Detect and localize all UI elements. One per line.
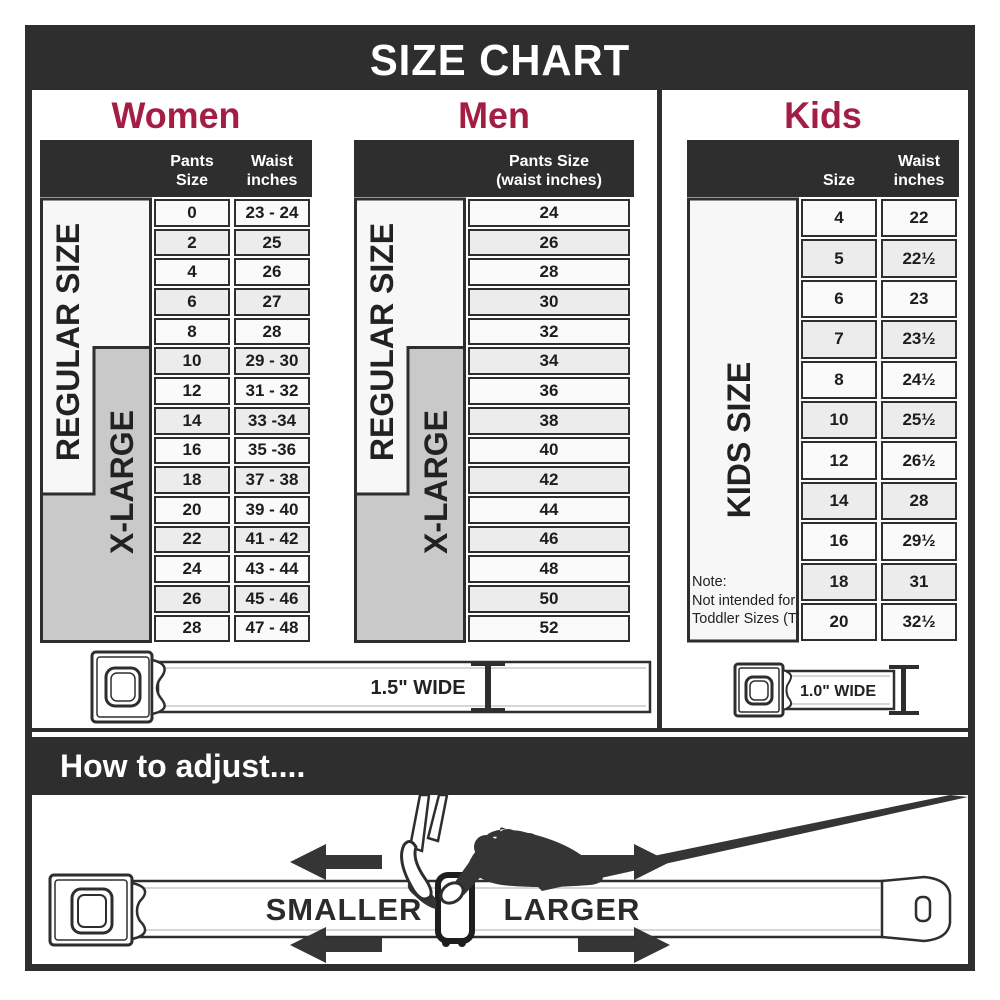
- seatbelt-buckle-icon: [50, 875, 145, 945]
- women-rows: 023 - 242254266278281029 - 301231 - 3214…: [154, 199, 310, 642]
- kids-size-band: KIDS SIZE Note: Not intended for Toddler…: [687, 140, 799, 643]
- kids-col-size: Size: [801, 171, 877, 190]
- adult-pane: Women Pants Size Waist inches: [32, 90, 657, 728]
- women-pants-size-cell: 14: [154, 407, 230, 435]
- kids-waist-cell: 29½: [881, 522, 957, 560]
- women-waist-cell: 33 -34: [234, 407, 310, 435]
- kids-waist-cell: 23½: [881, 320, 957, 358]
- kids-pane: Kids Size Waist inches KIDS SIZE: [662, 90, 968, 728]
- kids-size-cell: 10: [801, 401, 877, 439]
- women-xlarge-label: X-LARGE: [104, 410, 140, 554]
- kids-size-cell: 18: [801, 563, 877, 601]
- page-title: SIZE CHART: [370, 36, 630, 86]
- men-pants-size-cell: 42: [468, 466, 630, 494]
- kids-waist-cell: 23: [881, 280, 957, 318]
- women-waist-cell: 25: [234, 229, 310, 257]
- men-section: Men Pants Size (waist inches) REGULAR SI…: [354, 92, 634, 643]
- seatbelt-buckle-icon: [92, 652, 165, 722]
- women-waist-cell: 43 - 44: [234, 555, 310, 583]
- women-pants-size-cell: 2: [154, 229, 230, 257]
- kids-section: Kids Size Waist inches KIDS SIZE: [687, 92, 959, 643]
- men-pants-size-cell: 40: [468, 437, 630, 465]
- women-waist-cell: 29 - 30: [234, 347, 310, 375]
- women-pants-size-cell: 8: [154, 318, 230, 346]
- size-chart-page: SIZE CHART Women Pants Size Waist inches: [0, 0, 1000, 1000]
- women-col-pants-size: Pants Size: [154, 152, 230, 190]
- title-banner: SIZE CHART: [32, 32, 968, 90]
- kids-note-line2: Not intended for: [692, 593, 795, 609]
- men-col-pants-size: Pants Size (waist inches): [468, 152, 630, 190]
- women-waist-cell: 39 - 40: [234, 496, 310, 524]
- women-pants-size-cell: 20: [154, 496, 230, 524]
- arrow-left-icon: [290, 844, 382, 880]
- women-col-waist: Waist inches: [234, 152, 310, 190]
- women-pants-size-cell: 4: [154, 258, 230, 286]
- men-xlarge-label: X-LARGE: [418, 410, 454, 554]
- women-waist-cell: 35 -36: [234, 437, 310, 465]
- kids-waist-cell: 26½: [881, 441, 957, 479]
- larger-label: LARGER: [504, 892, 641, 927]
- how-to-adjust-heading: How to adjust....: [32, 748, 305, 785]
- kids-waist-cell: 28: [881, 482, 957, 520]
- women-waist-cell: 23 - 24: [234, 199, 310, 227]
- kids-size-cell: 8: [801, 361, 877, 399]
- belt-tip-icon: [882, 877, 950, 941]
- men-size-band: REGULAR SIZE X-LARGE: [354, 140, 466, 643]
- kids-size-cell: 20: [801, 603, 877, 641]
- men-regular-size-label: REGULAR SIZE: [364, 223, 400, 461]
- kids-note-line3: Toddler Sizes (T): [692, 611, 799, 627]
- men-pants-size-cell: 46: [468, 526, 630, 554]
- women-size-table: Pants Size Waist inches REGULAR SIZE X-L…: [40, 140, 312, 643]
- kids-size-cell: 5: [801, 239, 877, 277]
- women-pants-size-cell: 0: [154, 199, 230, 227]
- kids-note-line1: Note:: [692, 574, 727, 590]
- women-waist-cell: 41 - 42: [234, 526, 310, 554]
- kids-size-cell: 16: [801, 522, 877, 560]
- women-waist-cell: 47 - 48: [234, 615, 310, 643]
- men-pants-size-cell: 34: [468, 347, 630, 375]
- kids-waist-cell: 22½: [881, 239, 957, 277]
- kids-waist-cell: 32½: [881, 603, 957, 641]
- kids-rows: 422522½623723½824½1025½1226½14281629½183…: [801, 199, 957, 641]
- men-pants-size-cell: 30: [468, 288, 630, 316]
- women-pants-size-cell: 22: [154, 526, 230, 554]
- kids-size-cell: 7: [801, 320, 877, 358]
- men-pants-size-cell: 32: [468, 318, 630, 346]
- women-waist-cell: 45 - 46: [234, 585, 310, 613]
- kids-waist-cell: 24½: [881, 361, 957, 399]
- kids-col-waist: Waist inches: [881, 152, 957, 190]
- kids-waist-cell: 25½: [881, 401, 957, 439]
- women-pants-size-cell: 12: [154, 377, 230, 405]
- women-waist-cell: 37 - 38: [234, 466, 310, 494]
- women-pants-size-cell: 18: [154, 466, 230, 494]
- kids-size-cell: 14: [801, 482, 877, 520]
- chart-frame: SIZE CHART Women Pants Size Waist inches: [25, 25, 975, 971]
- men-pants-size-cell: 50: [468, 585, 630, 613]
- kids-heading: Kids: [691, 92, 955, 140]
- men-pants-size-cell: 36: [468, 377, 630, 405]
- kids-size-cell: 6: [801, 280, 877, 318]
- women-pants-size-cell: 24: [154, 555, 230, 583]
- women-regular-size-label: REGULAR SIZE: [50, 223, 86, 461]
- adult-belt-width-label: 1.5" WIDE: [370, 677, 465, 699]
- adjustment-illustration: SMALLER LARGER: [32, 795, 968, 964]
- women-pants-size-cell: 28: [154, 615, 230, 643]
- women-pants-size-cell: 16: [154, 437, 230, 465]
- women-size-band: REGULAR SIZE X-LARGE: [40, 140, 152, 643]
- men-pants-size-cell: 48: [468, 555, 630, 583]
- men-pants-size-cell: 52: [468, 615, 630, 643]
- women-pants-size-cell: 6: [154, 288, 230, 316]
- women-section: Women Pants Size Waist inches: [40, 92, 312, 643]
- men-pants-size-cell: 28: [468, 258, 630, 286]
- kids-waist-cell: 22: [881, 199, 957, 237]
- kids-belt-width-illustration: 1.0" WIDE: [732, 660, 928, 720]
- kids-size-cell: 12: [801, 441, 877, 479]
- kids-size-cell: 4: [801, 199, 877, 237]
- smaller-label: SMALLER: [266, 892, 423, 927]
- men-pants-size-cell: 26: [468, 229, 630, 257]
- women-waist-cell: 28: [234, 318, 310, 346]
- men-rows: 242628303234363840424446485052: [468, 199, 630, 642]
- kids-size-label: KIDS SIZE: [721, 362, 757, 518]
- women-waist-cell: 26: [234, 258, 310, 286]
- men-pants-size-cell: 38: [468, 407, 630, 435]
- belt-adjust-diagram: SMALLER LARGER: [32, 795, 968, 964]
- men-size-table: Pants Size (waist inches) REGULAR SIZE X…: [354, 140, 634, 643]
- men-pants-size-cell: 24: [468, 199, 630, 227]
- women-waist-cell: 27: [234, 288, 310, 316]
- men-pants-size-cell: 44: [468, 496, 630, 524]
- women-pants-size-cell: 10: [154, 347, 230, 375]
- kids-waist-cell: 31: [881, 563, 957, 601]
- women-waist-cell: 31 - 32: [234, 377, 310, 405]
- kids-size-table: Size Waist inches KIDS SIZE Note: Not in…: [687, 140, 959, 643]
- how-to-adjust-banner: How to adjust....: [32, 737, 968, 795]
- seatbelt-buckle-icon: [735, 664, 791, 716]
- kids-belt-width-label: 1.0" WIDE: [800, 683, 876, 700]
- tables-area: Women Pants Size Waist inches: [32, 90, 968, 732]
- adult-belt-width-illustration: 1.5" WIDE: [88, 646, 654, 726]
- women-heading: Women: [44, 92, 308, 140]
- men-heading: Men: [358, 92, 630, 140]
- women-pants-size-cell: 26: [154, 585, 230, 613]
